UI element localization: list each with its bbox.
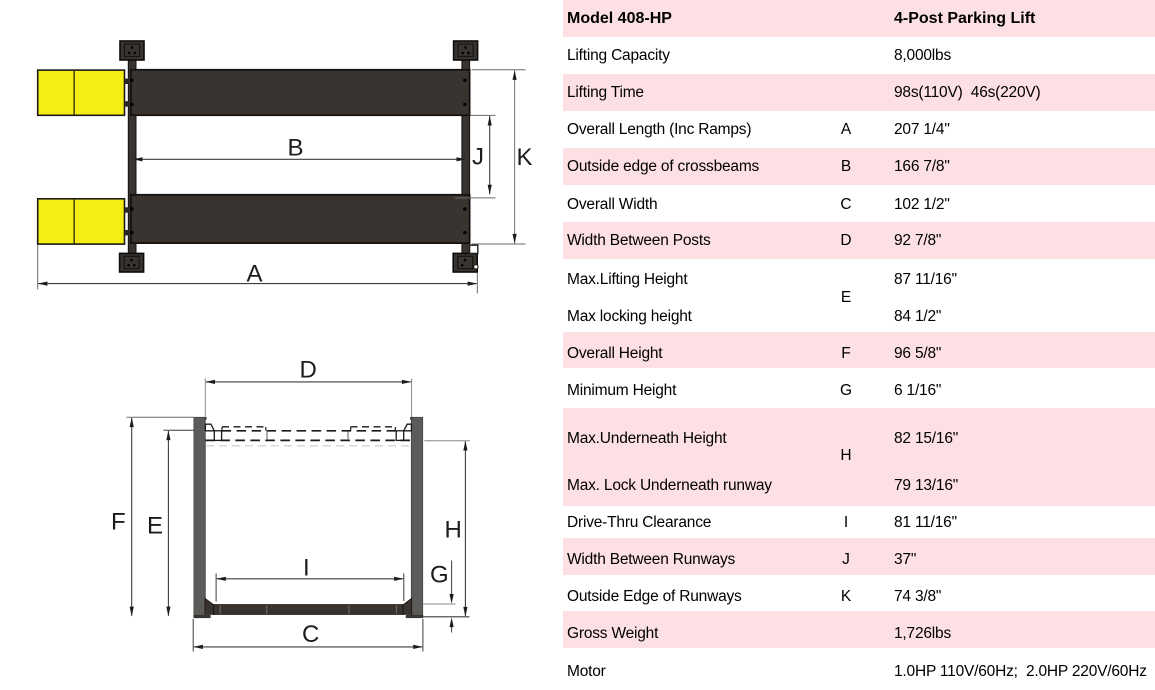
svg-text:E: E xyxy=(147,513,163,540)
svg-text:D: D xyxy=(300,357,317,384)
svg-text:K: K xyxy=(517,144,533,171)
svg-text:G: G xyxy=(430,562,449,589)
svg-text:J: J xyxy=(472,144,484,171)
svg-text:C: C xyxy=(302,621,319,648)
svg-text:B: B xyxy=(288,135,304,162)
svg-text:I: I xyxy=(303,555,310,582)
svg-text:F: F xyxy=(111,509,126,536)
svg-text:A: A xyxy=(247,261,263,288)
svg-text:H: H xyxy=(445,517,462,544)
